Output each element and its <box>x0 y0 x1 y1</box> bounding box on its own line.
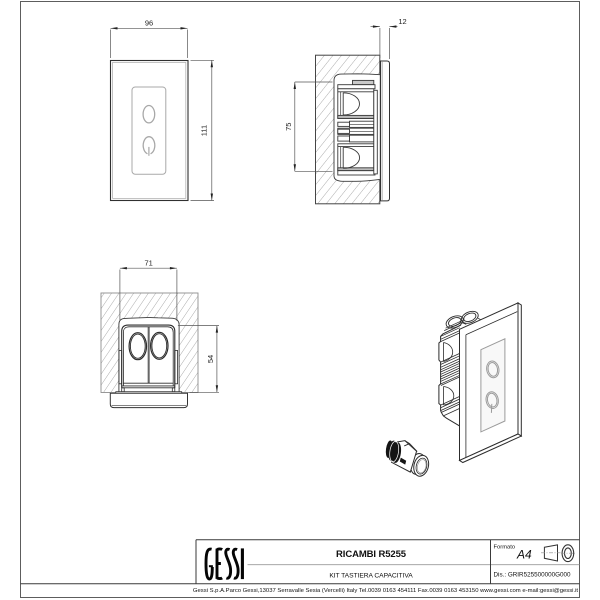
svg-text:54: 54 <box>206 355 215 363</box>
svg-text:12: 12 <box>398 17 406 26</box>
svg-text:71: 71 <box>145 259 153 268</box>
svg-text:RICAMBI R5255: RICAMBI R5255 <box>336 549 407 560</box>
svg-text:75: 75 <box>284 123 293 131</box>
svg-text:KIT TASTIERA CAPACITIVA: KIT TASTIERA CAPACITIVA <box>329 573 413 580</box>
svg-text:Dis.: GRIR525500000G000: Dis.: GRIR525500000G000 <box>494 572 572 579</box>
svg-text:111: 111 <box>200 125 209 136</box>
svg-text:A4: A4 <box>516 548 532 562</box>
svg-text:96: 96 <box>145 19 153 28</box>
svg-text:Formato: Formato <box>494 545 516 551</box>
svg-text:Gessi S.p.A.Parco Gessi,13037: Gessi S.p.A.Parco Gessi,13037 Serravalle… <box>193 588 579 594</box>
